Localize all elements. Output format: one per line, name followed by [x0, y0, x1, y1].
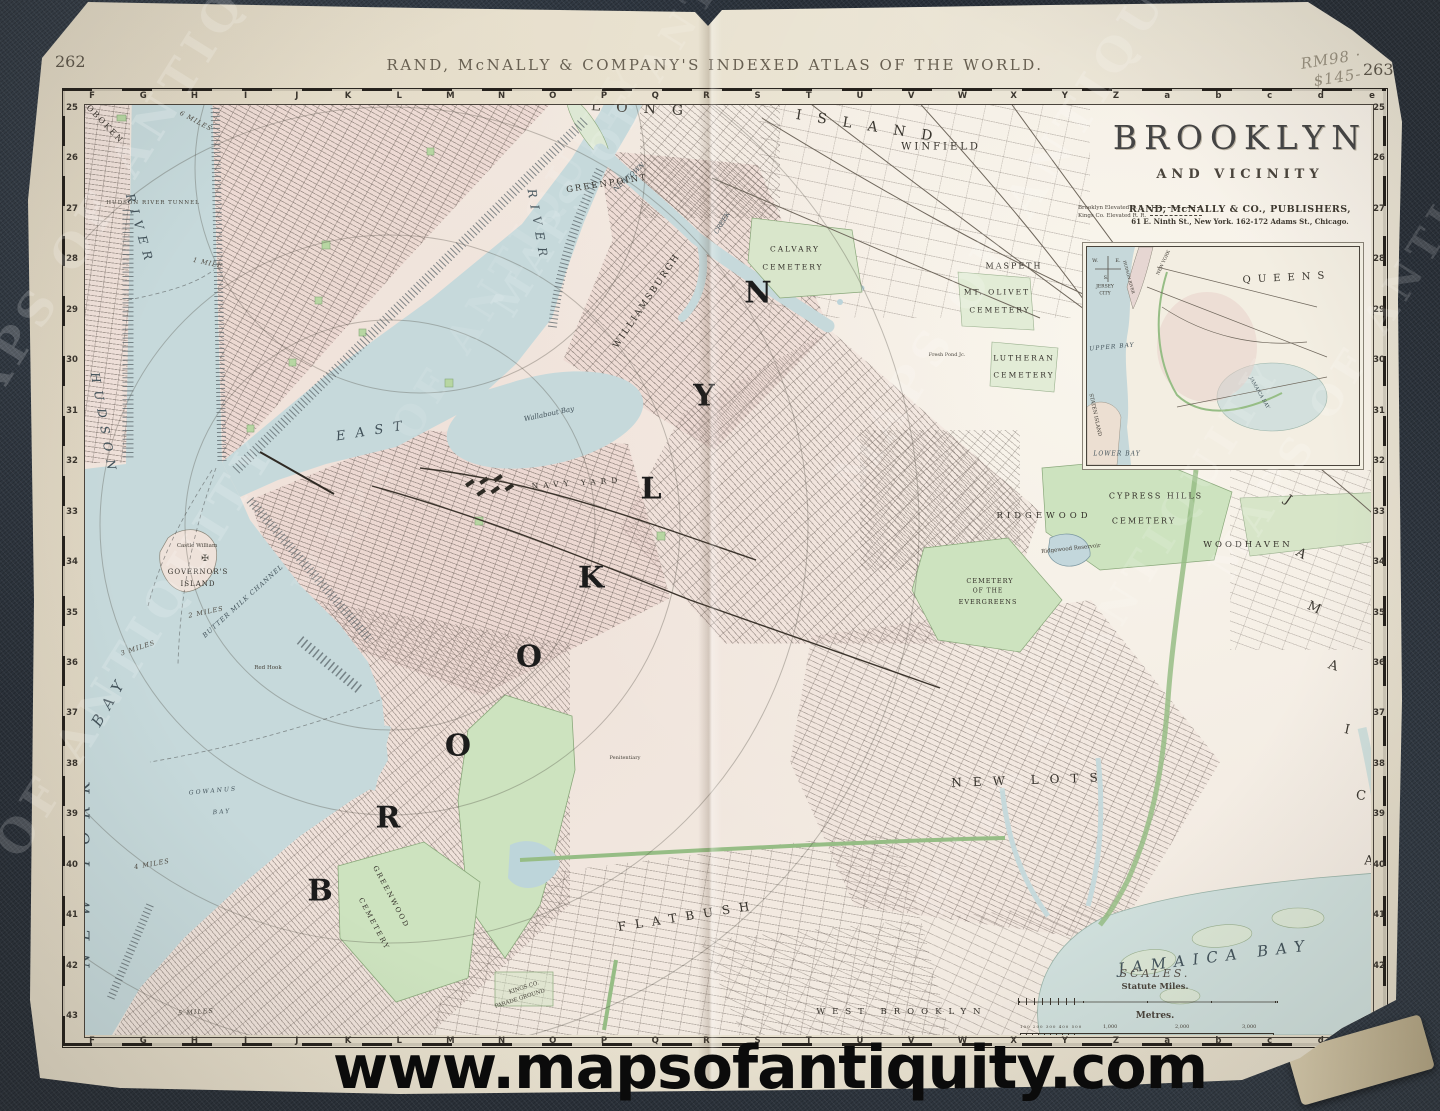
grid-letter-top: T	[806, 91, 812, 101]
metres-tick: 1,000	[1103, 1024, 1117, 1030]
watermark-url: www.mapsofantiquity.com	[333, 1033, 1207, 1103]
atlas-header: RAND, McNALLY & COMPANY'S INDEXED ATLAS …	[387, 56, 1044, 74]
map-label: O	[445, 729, 471, 764]
title-block: BROOKLYN AND VICINITY	[1092, 118, 1388, 182]
grid-number-left: 27	[66, 204, 78, 214]
grid-letter-top: S	[755, 91, 761, 101]
grid-letter-bottom: H	[191, 1036, 198, 1046]
grid-number-left: 31	[66, 406, 78, 416]
inset-label: W.	[1092, 258, 1098, 264]
map-label: MT. OLIVET	[964, 288, 1030, 297]
grid-letter-top: U	[857, 91, 864, 101]
metres-small-ticks: 100 200 300 400 500	[1020, 1024, 1082, 1029]
map-label: CEMETERY	[1112, 517, 1176, 526]
map-label: CEMETERY	[966, 577, 1013, 585]
grid-letter-top: H	[191, 91, 198, 101]
grid-letter-bottom: F	[89, 1036, 95, 1046]
map-label: GOVERNOR'S	[168, 568, 229, 576]
map-label: O	[516, 640, 542, 675]
grid-number-right: 25	[1373, 103, 1385, 113]
metres-tick-labels: 1,0002,0003,000100 200 300 400 500	[1005, 1024, 1305, 1032]
grid-letter-top: X	[1010, 91, 1017, 101]
map-title: BROOKLYN	[1092, 118, 1388, 157]
map-label: LUTHERAN	[993, 354, 1055, 363]
grid-number-left: 40	[66, 860, 78, 870]
page-number-left: 262	[55, 52, 86, 71]
map-label: A	[1364, 853, 1371, 868]
inset-label: JERSEY	[1096, 285, 1114, 290]
metres-tick: 2,000	[1175, 1024, 1189, 1030]
map-label: HUDSON RIVER TUNNEL	[106, 200, 199, 206]
publisher-imprint: RAND, McNALLY & CO., PUBLISHERS, 61 E. N…	[1100, 204, 1380, 226]
map-label: OF THE	[973, 588, 1004, 595]
grid-number-left: 26	[66, 153, 78, 163]
map-label: MASPETH	[986, 262, 1043, 271]
grid-letter-top: G	[140, 91, 147, 101]
border-ticks-top	[62, 88, 1386, 91]
grid-number-right: 39	[1373, 809, 1385, 819]
map-label: Y	[693, 379, 714, 414]
inset-label: LOWER BAY	[1093, 451, 1140, 458]
map-canvas: BROOKLYNLONGISLANDJAMAICANEW YORKBAYHUDS…	[85, 105, 1371, 1035]
grid-number-right: 41	[1373, 910, 1385, 920]
grid-number-left: 30	[66, 355, 78, 365]
grid-letter-bottom: G	[140, 1036, 147, 1046]
grid-letter-top: P	[601, 91, 607, 101]
inset-label: E.	[1115, 258, 1120, 264]
map-label: CALVARY	[770, 245, 820, 254]
grid-number-left: 42	[66, 961, 78, 971]
grid-letter-bottom: I	[244, 1036, 247, 1046]
scales-metres-label: Metres.	[1005, 1011, 1305, 1021]
inset-label: S.	[1104, 275, 1109, 281]
grid-number-right: 36	[1373, 658, 1385, 668]
grid-letter-top: d	[1318, 91, 1324, 101]
grid-letter-bottom: b	[1215, 1036, 1221, 1046]
metres-tick: 3,000	[1242, 1024, 1256, 1030]
map-sheet: RAND, McNALLY & COMPANY'S INDEXED ATLAS …	[0, 0, 1440, 1111]
grid-number-right: 37	[1373, 708, 1385, 718]
grid-letter-top: W	[958, 91, 967, 101]
grid-number-right: 38	[1373, 759, 1385, 769]
grid-number-right: 29	[1373, 305, 1385, 315]
grid-letter-top: a	[1164, 91, 1170, 101]
grid-letter-top: Y	[1062, 91, 1068, 101]
map-label: WOODHAVEN	[1203, 540, 1292, 550]
pencil-note: RM98 · $145-	[1299, 45, 1365, 92]
grid-letter-top: V	[908, 91, 915, 101]
map-label: NEW YORK	[85, 769, 94, 968]
grid-number-left: 36	[66, 658, 78, 668]
publisher-name: RAND, McNALLY & CO., PUBLISHERS,	[1100, 204, 1380, 215]
grid-letter-top: K	[345, 91, 352, 101]
grid-number-left: 41	[66, 910, 78, 920]
map-label: WEST BROOKLYN	[816, 1007, 987, 1017]
map-label: Castle William	[177, 543, 217, 549]
grid-number-left: 29	[66, 305, 78, 315]
grid-number-right: 34	[1373, 557, 1385, 567]
grid-letter-top: e	[1369, 91, 1375, 101]
map-label: C	[1355, 788, 1366, 804]
map-label: Penitentiary	[610, 755, 641, 761]
grid-number-right: 40	[1373, 860, 1385, 870]
grid-number-right: 30	[1373, 355, 1385, 365]
grid-letter-top: O	[549, 91, 556, 101]
grid-letter-bottom: J	[295, 1036, 298, 1046]
grid-number-right: 33	[1373, 507, 1385, 517]
map-label: K	[578, 561, 604, 596]
map-label: ✠	[201, 554, 209, 564]
grid-letter-top: R	[703, 91, 710, 101]
map-label: CEMETERY	[993, 371, 1054, 380]
scale-block: SCALES. Statute Miles. Metres. 1,0002,00…	[1005, 967, 1305, 992]
grid-letter-top: Q	[652, 91, 659, 101]
grid-number-right: 35	[1373, 608, 1385, 618]
grid-letter-top: I	[244, 91, 247, 101]
map-label: L	[640, 472, 661, 507]
map-label: ISLAND	[180, 580, 215, 588]
map-label: CEMETERY	[762, 263, 823, 272]
page-number-right: 263	[1363, 60, 1394, 79]
scales-miles-label: Statute Miles.	[1005, 982, 1305, 992]
grid-letter-top: b	[1215, 91, 1221, 101]
grid-letter-top: N	[498, 91, 505, 101]
grid-number-left: 33	[66, 507, 78, 517]
scales-heading: SCALES.	[1005, 967, 1305, 980]
map-label: EVERGREENS	[959, 598, 1018, 606]
grid-letter-bottom: c	[1267, 1036, 1272, 1046]
map-label: CYPRESS HILLS	[1109, 492, 1203, 501]
grid-number-right: 31	[1373, 406, 1385, 416]
grid-letter-top: L	[396, 91, 401, 101]
grid-number-left: 39	[66, 809, 78, 819]
grid-letter-top: Z	[1113, 91, 1119, 101]
grid-letter-top: M	[446, 91, 454, 101]
grid-number-left: 32	[66, 456, 78, 466]
grid-letter-top: c	[1267, 91, 1272, 101]
grid-number-right: 32	[1373, 456, 1385, 466]
map-label: CEMETERY	[969, 306, 1030, 315]
map-label: WINFIELD	[901, 142, 981, 153]
grid-number-left: 28	[66, 254, 78, 264]
map-label: Red Hook	[254, 665, 281, 671]
grid-letter-top: J	[295, 91, 298, 101]
map-subtitle: AND VICINITY	[1092, 167, 1388, 182]
grid-number-right: 28	[1373, 254, 1385, 264]
map-label: N	[744, 276, 771, 311]
grid-number-left: 25	[66, 103, 78, 113]
grid-number-left: 35	[66, 608, 78, 618]
map-label: RIDGEWOOD	[996, 511, 1091, 521]
grid-number-left: 38	[66, 759, 78, 769]
grid-number-left: 43	[66, 1011, 78, 1021]
inset-label: CITY	[1099, 292, 1110, 297]
miles-scale-subdivisions	[1018, 998, 1082, 1005]
map-label: B	[307, 874, 332, 909]
map-label: Fresh Pond Jc.	[929, 352, 966, 358]
inset-map-brooklyn-vicinity: QUEENSJERSEYCITYNEW YORKHUDSON RIVERUPPE…	[1086, 246, 1360, 466]
grid-number-left: 37	[66, 708, 78, 718]
border-ticks-left	[62, 88, 65, 1046]
photo-stage: RAND, McNALLY & COMPANY'S INDEXED ATLAS …	[0, 0, 1440, 1111]
grid-letter-top: F	[89, 91, 95, 101]
map-label: R	[376, 801, 401, 836]
grid-number-left: 34	[66, 557, 78, 567]
publisher-addresses: 61 E. Ninth St., New York. 162-172 Adams…	[1100, 217, 1380, 226]
grid-number-right: 42	[1373, 961, 1385, 971]
